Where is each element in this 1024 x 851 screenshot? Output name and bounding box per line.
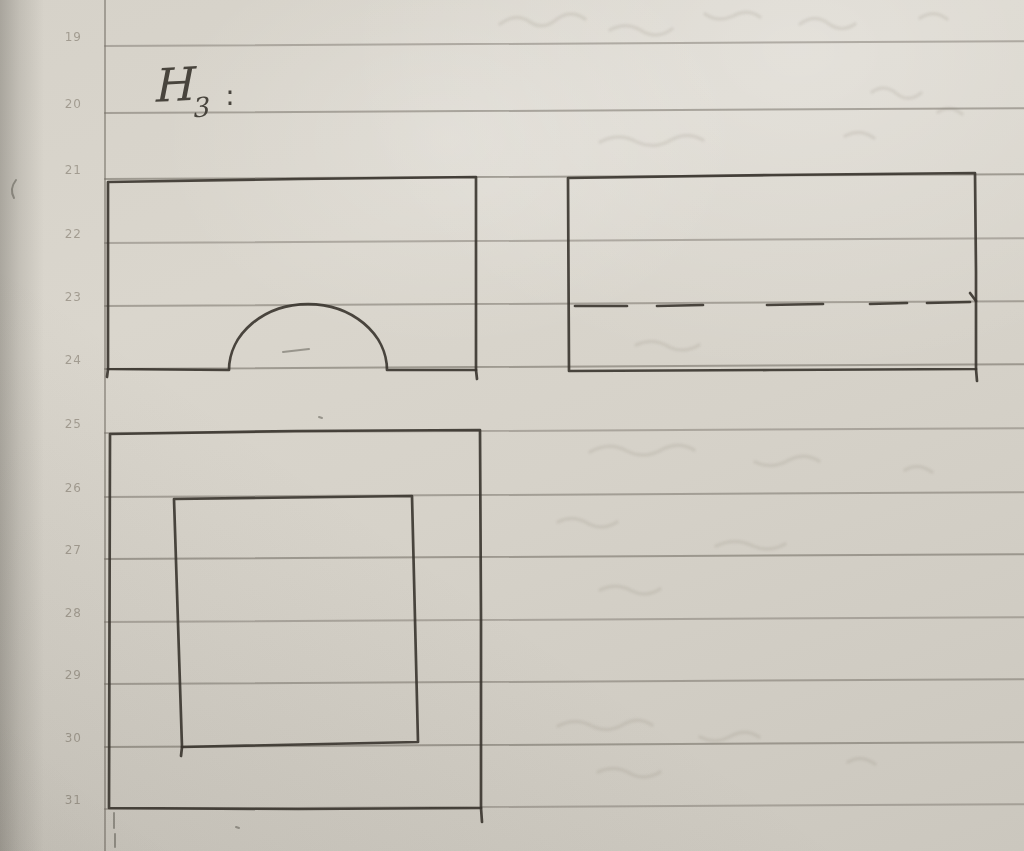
figure-stroke bbox=[283, 349, 309, 352]
figure-stroke bbox=[976, 369, 977, 381]
figure-stroke bbox=[927, 302, 970, 303]
figure-stroke bbox=[481, 808, 482, 822]
figure-stroke bbox=[476, 370, 477, 379]
figure-stroke bbox=[108, 177, 476, 370]
figure-stroke bbox=[568, 173, 976, 371]
figure-stroke bbox=[174, 496, 418, 747]
figure-stroke bbox=[109, 430, 481, 809]
figure-stroke bbox=[181, 747, 182, 756]
figure-stroke bbox=[319, 417, 322, 418]
figure-stray-marks bbox=[12, 180, 322, 847]
figure-stroke bbox=[767, 304, 823, 305]
figure-stroke bbox=[870, 303, 907, 304]
figure-side-view bbox=[568, 173, 977, 381]
figure-stroke bbox=[12, 180, 16, 198]
figure-top-view bbox=[109, 430, 482, 822]
figure-stroke bbox=[107, 369, 108, 377]
figure-stroke bbox=[236, 827, 239, 828]
hand-drawn-figures bbox=[0, 0, 1024, 851]
notebook-page-photo: 19202122232425262728293031 H3: bbox=[0, 0, 1024, 851]
figure-stroke bbox=[657, 305, 703, 306]
figure-front-view bbox=[107, 177, 477, 379]
